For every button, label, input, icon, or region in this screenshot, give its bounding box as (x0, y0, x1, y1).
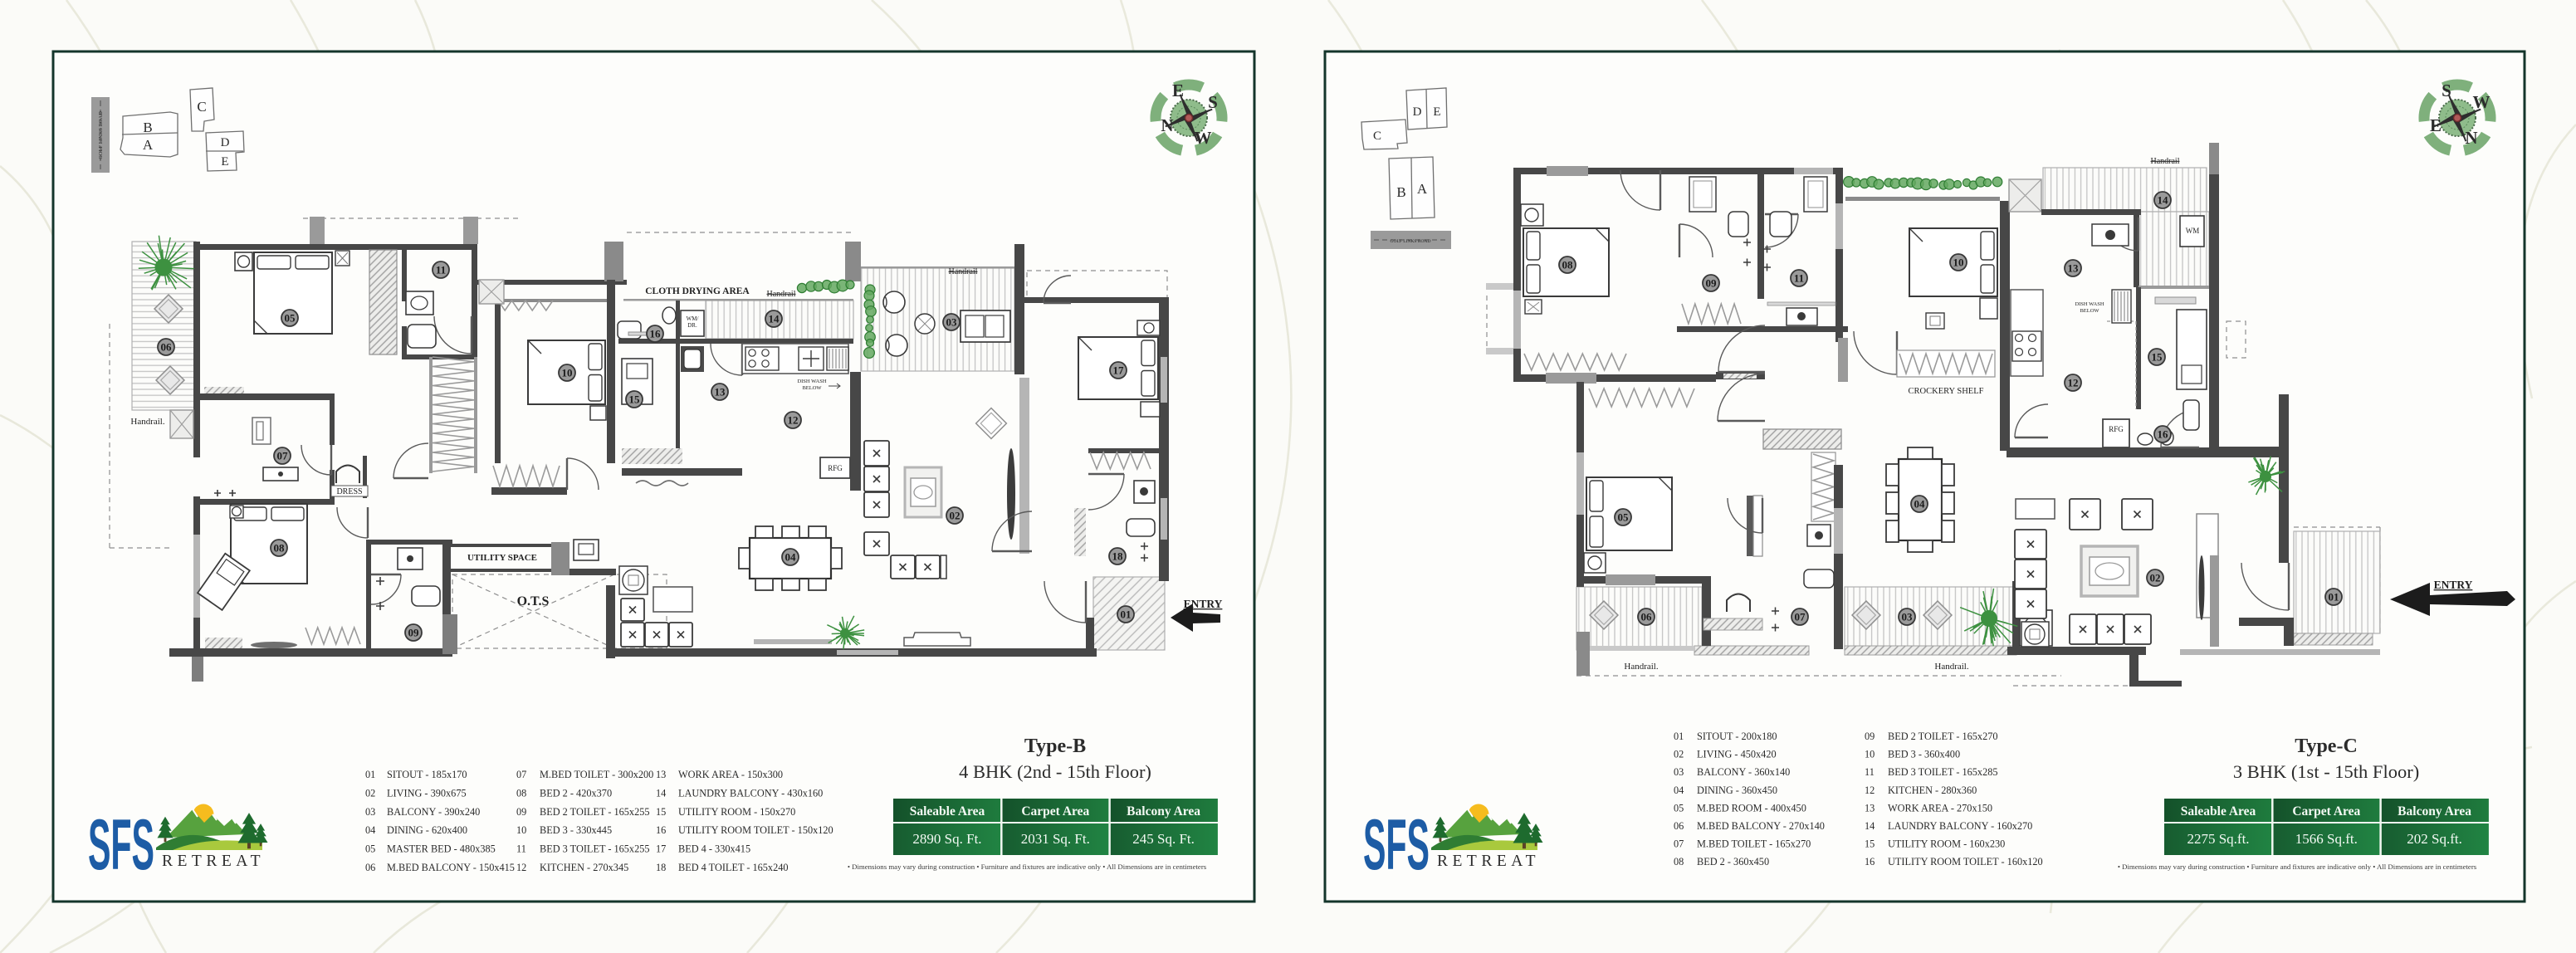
svg-text:02: 02 (1674, 749, 1684, 760)
svg-text:DISH WASH: DISH WASH (797, 379, 826, 384)
svg-text:KITCHEN - 280x360: KITCHEN - 280x360 (1888, 784, 1977, 796)
svg-text:06: 06 (161, 341, 173, 354)
svg-text:03: 03 (365, 806, 375, 818)
svg-text:11: 11 (1794, 272, 1804, 285)
svg-text:DRESS: DRESS (336, 487, 362, 496)
svg-text:05: 05 (285, 312, 296, 325)
svg-text:C: C (197, 99, 206, 115)
svg-text:13: 13 (715, 386, 726, 398)
svg-text:W: W (1195, 128, 1212, 148)
svg-text:B: B (1396, 184, 1405, 200)
svg-text:LAUNDRY BALCONY - 430x160: LAUNDRY BALCONY - 430x160 (678, 787, 823, 799)
svg-text:03: 03 (946, 316, 958, 329)
svg-text:BELOW: BELOW (802, 385, 822, 391)
svg-text:16: 16 (650, 328, 662, 340)
svg-text:13: 13 (656, 769, 666, 780)
svg-text:05: 05 (1674, 802, 1684, 814)
svg-text:WORK AREA - 150x300: WORK AREA - 150x300 (678, 769, 783, 780)
svg-text:09: 09 (408, 627, 420, 639)
svg-text:N: N (2465, 128, 2477, 148)
svg-text:LIVING - 390x675: LIVING - 390x675 (387, 787, 467, 799)
svg-text:15: 15 (1865, 838, 1875, 850)
svg-text:D: D (1413, 105, 1422, 119)
svg-text:UTILITY ROOM TOILET - 160x120: UTILITY ROOM TOILET - 160x120 (1888, 856, 2043, 867)
svg-text:10: 10 (516, 824, 526, 836)
svg-text:BED 3 - 330x445: BED 3 - 330x445 (540, 824, 612, 836)
svg-text:01: 01 (1674, 731, 1684, 742)
svg-text:2890 Sq. Ft.: 2890 Sq. Ft. (912, 831, 981, 847)
svg-text:05: 05 (1618, 511, 1630, 524)
svg-text:09: 09 (516, 806, 526, 818)
svg-text:SITOUT - 185x170: SITOUT - 185x170 (387, 769, 467, 780)
svg-text:SITOUT - 200x180: SITOUT - 200x180 (1697, 731, 1777, 742)
svg-text:LIVING - 450x420: LIVING - 450x420 (1697, 749, 1777, 760)
svg-text:W: W (2473, 92, 2490, 112)
svg-text:GOLF LINKS ROAD: GOLF LINKS ROAD (1391, 239, 1431, 244)
svg-text:• Dimensions may vary during c: • Dimensions may vary during constructio… (2118, 863, 2477, 871)
svg-text:C: C (1373, 130, 1381, 143)
svg-text:Handrail.: Handrail. (1624, 662, 1658, 672)
svg-text:D: D (221, 136, 230, 149)
svg-text:2031 Sq. Ft.: 2031 Sq. Ft. (1021, 831, 1090, 847)
svg-text:06: 06 (1674, 820, 1684, 832)
svg-text:02: 02 (2150, 572, 2161, 584)
svg-text:GOLF LINKS ROAD: GOLF LINKS ROAD (98, 111, 104, 159)
svg-text:M.BED BALCONY - 270x140: M.BED BALCONY - 270x140 (1697, 820, 1825, 832)
svg-text:MASTER BED - 480x385: MASTER BED - 480x385 (387, 843, 496, 855)
svg-text:BALCONY - 360x140: BALCONY - 360x140 (1697, 766, 1790, 778)
svg-text:DINING - 620x400: DINING - 620x400 (387, 824, 467, 836)
svg-text:N: N (1161, 115, 1173, 135)
svg-text:4 BHK (2nd - 15th Floor): 4 BHK (2nd - 15th Floor) (959, 761, 1151, 782)
svg-text:01: 01 (2329, 591, 2339, 604)
svg-text:202 Sq.ft.: 202 Sq.ft. (2407, 831, 2462, 847)
svg-text:BED 4 - 330x415: BED 4 - 330x415 (678, 843, 750, 855)
svg-text:15: 15 (2152, 351, 2163, 364)
svg-text:KITCHEN - 270x345: KITCHEN - 270x345 (540, 862, 628, 873)
svg-text:ENTRY: ENTRY (2434, 579, 2473, 591)
svg-text:UTILITY ROOM TOILET - 150x120: UTILITY ROOM TOILET - 150x120 (678, 824, 833, 836)
svg-text:RETREAT: RETREAT (1437, 853, 1540, 870)
svg-text:07: 07 (1795, 611, 1806, 623)
svg-text:S: S (1208, 92, 1218, 112)
svg-text:Handrail: Handrail (949, 267, 978, 276)
svg-text:UTILITY ROOM - 160x230: UTILITY ROOM - 160x230 (1888, 838, 2005, 850)
svg-text:UTILITY SPACE: UTILITY SPACE (467, 553, 537, 563)
svg-text:E: E (221, 155, 228, 169)
svg-text:09: 09 (1865, 731, 1875, 742)
svg-text:Type-B: Type-B (1024, 736, 1086, 757)
svg-text:17: 17 (1113, 364, 1125, 377)
svg-text:16: 16 (2158, 428, 2169, 441)
svg-text:2275 Sq.ft.: 2275 Sq.ft. (2187, 831, 2249, 847)
svg-text:Carpet Area: Carpet Area (1021, 804, 1089, 819)
svg-text:Handrail.: Handrail. (1934, 662, 1968, 672)
svg-text:DINING - 360x450: DINING - 360x450 (1697, 784, 1777, 796)
svg-text:01: 01 (1121, 608, 1132, 621)
svg-text:Handrail: Handrail (2151, 157, 2180, 166)
svg-text:E: E (1433, 105, 1440, 119)
svg-text:13: 13 (2068, 262, 2080, 275)
svg-text:03: 03 (1674, 766, 1684, 778)
svg-text:M.BED TOILET - 300x200: M.BED TOILET - 300x200 (540, 769, 653, 780)
svg-text:11: 11 (516, 843, 526, 855)
svg-text:E: E (2430, 115, 2442, 135)
svg-text:08: 08 (1674, 856, 1684, 867)
svg-text:BED 3 TOILET - 165x255: BED 3 TOILET - 165x255 (540, 843, 650, 855)
svg-text:DR.: DR. (687, 322, 697, 329)
svg-text:11: 11 (1865, 766, 1875, 778)
svg-text:Balcony Area: Balcony Area (2398, 804, 2471, 819)
svg-text:Type-C: Type-C (2295, 736, 2358, 757)
svg-text:RFG: RFG (828, 464, 843, 472)
svg-text:10: 10 (1953, 257, 1964, 269)
svg-text:12: 12 (2068, 377, 2079, 389)
svg-text:12: 12 (788, 414, 799, 427)
svg-text:BED 2 TOILET - 165x270: BED 2 TOILET - 165x270 (1888, 731, 1998, 742)
svg-text:1566 Sq.ft.: 1566 Sq.ft. (2295, 831, 2358, 847)
svg-text:08: 08 (516, 787, 526, 799)
svg-text:CLOTH DRYING AREA: CLOTH DRYING AREA (645, 286, 750, 296)
svg-text:CROCKERY SHELF: CROCKERY SHELF (1909, 387, 1984, 396)
svg-text:RETREAT: RETREAT (162, 853, 265, 870)
svg-text:06: 06 (1641, 611, 1653, 623)
svg-text:12: 12 (1865, 784, 1875, 796)
svg-text:O.T.S: O.T.S (517, 594, 550, 608)
svg-text:04: 04 (365, 824, 375, 836)
svg-text:08: 08 (274, 542, 286, 555)
svg-text:09: 09 (1706, 277, 1718, 290)
svg-text:BALCONY - 390x240: BALCONY - 390x240 (387, 806, 480, 818)
svg-text:BED 3 - 360x400: BED 3 - 360x400 (1888, 749, 1960, 760)
svg-text:LAUNDRY BALCONY - 160x270: LAUNDRY BALCONY - 160x270 (1888, 820, 2032, 832)
svg-text:245 Sq. Ft.: 245 Sq. Ft. (1132, 831, 1195, 847)
svg-text:03: 03 (1902, 611, 1914, 623)
svg-text:06: 06 (365, 862, 375, 873)
svg-text:04: 04 (1914, 498, 1926, 511)
svg-text:Saleable Area: Saleable Area (910, 804, 985, 819)
svg-text:07: 07 (516, 769, 526, 780)
svg-text:16: 16 (1865, 856, 1875, 867)
svg-text:A: A (143, 137, 154, 153)
svg-text:14: 14 (1865, 820, 1875, 832)
svg-text:10: 10 (1865, 749, 1875, 760)
svg-text:3 BHK (1st - 15th Floor): 3 BHK (1st - 15th Floor) (2233, 761, 2419, 782)
svg-text:11: 11 (436, 264, 446, 276)
svg-text:UTILITY ROOM - 150x270: UTILITY ROOM - 150x270 (678, 806, 795, 818)
svg-text:Saleable Area: Saleable Area (2181, 804, 2256, 819)
svg-text:02: 02 (950, 510, 961, 522)
svg-text:16: 16 (656, 824, 666, 836)
svg-text:S: S (2442, 81, 2451, 100)
svg-text:05: 05 (365, 843, 375, 855)
svg-text:12: 12 (516, 862, 526, 873)
svg-text:BED 2 - 420x370: BED 2 - 420x370 (540, 787, 612, 799)
svg-text:BED 3 TOILET - 165x285: BED 3 TOILET - 165x285 (1888, 766, 1998, 778)
svg-text:WORK AREA - 270x150: WORK AREA - 270x150 (1888, 802, 1992, 814)
svg-text:B: B (143, 120, 152, 135)
svg-text:SFS: SFS (1363, 805, 1430, 885)
svg-text:RFG: RFG (2109, 425, 2124, 433)
svg-text:13: 13 (1865, 802, 1875, 814)
svg-text:07: 07 (1674, 838, 1684, 850)
svg-text:BELOW: BELOW (2080, 308, 2099, 314)
svg-text:14: 14 (769, 313, 780, 325)
svg-text:A: A (1417, 181, 1428, 197)
svg-text:01: 01 (365, 769, 375, 780)
svg-text:10: 10 (562, 367, 573, 379)
svg-text:15: 15 (629, 393, 641, 406)
svg-text:BED 4 TOILET - 165x240: BED 4 TOILET - 165x240 (678, 862, 789, 873)
svg-text:• Dimensions may vary during c: • Dimensions may vary during constructio… (848, 863, 1207, 871)
svg-text:E: E (1172, 81, 1184, 100)
svg-text:DISH WASH: DISH WASH (2075, 301, 2104, 307)
svg-text:BED 2 - 360x450: BED 2 - 360x450 (1697, 856, 1769, 867)
svg-text:M.BED BALCONY - 150x415: M.BED BALCONY - 150x415 (387, 862, 515, 873)
svg-text:18: 18 (1112, 550, 1124, 563)
svg-text:Carpet Area: Carpet Area (2292, 804, 2360, 819)
svg-text:07: 07 (277, 450, 289, 462)
svg-text:Handrail: Handrail (767, 290, 796, 299)
svg-text:08: 08 (1562, 259, 1574, 271)
svg-text:WM/: WM/ (687, 315, 699, 322)
svg-text:02: 02 (365, 787, 375, 799)
svg-text:M.BED ROOM - 400x450: M.BED ROOM - 400x450 (1697, 802, 1806, 814)
svg-text:15: 15 (656, 806, 666, 818)
svg-text:14: 14 (2158, 194, 2169, 207)
svg-text:M.BED TOILET - 165x270: M.BED TOILET - 165x270 (1697, 838, 1811, 850)
svg-text:WM: WM (2186, 227, 2200, 235)
svg-text:17: 17 (656, 843, 666, 855)
svg-text:Handrail.: Handrail. (130, 417, 164, 427)
svg-text:SFS: SFS (88, 805, 154, 885)
svg-text:04: 04 (1674, 784, 1684, 796)
svg-text:BED 2 TOILET - 165x255: BED 2 TOILET - 165x255 (540, 806, 650, 818)
svg-text:14: 14 (656, 787, 666, 799)
svg-text:18: 18 (656, 862, 666, 873)
svg-text:Balcony Area: Balcony Area (1127, 804, 1200, 819)
svg-text:04: 04 (785, 551, 797, 564)
